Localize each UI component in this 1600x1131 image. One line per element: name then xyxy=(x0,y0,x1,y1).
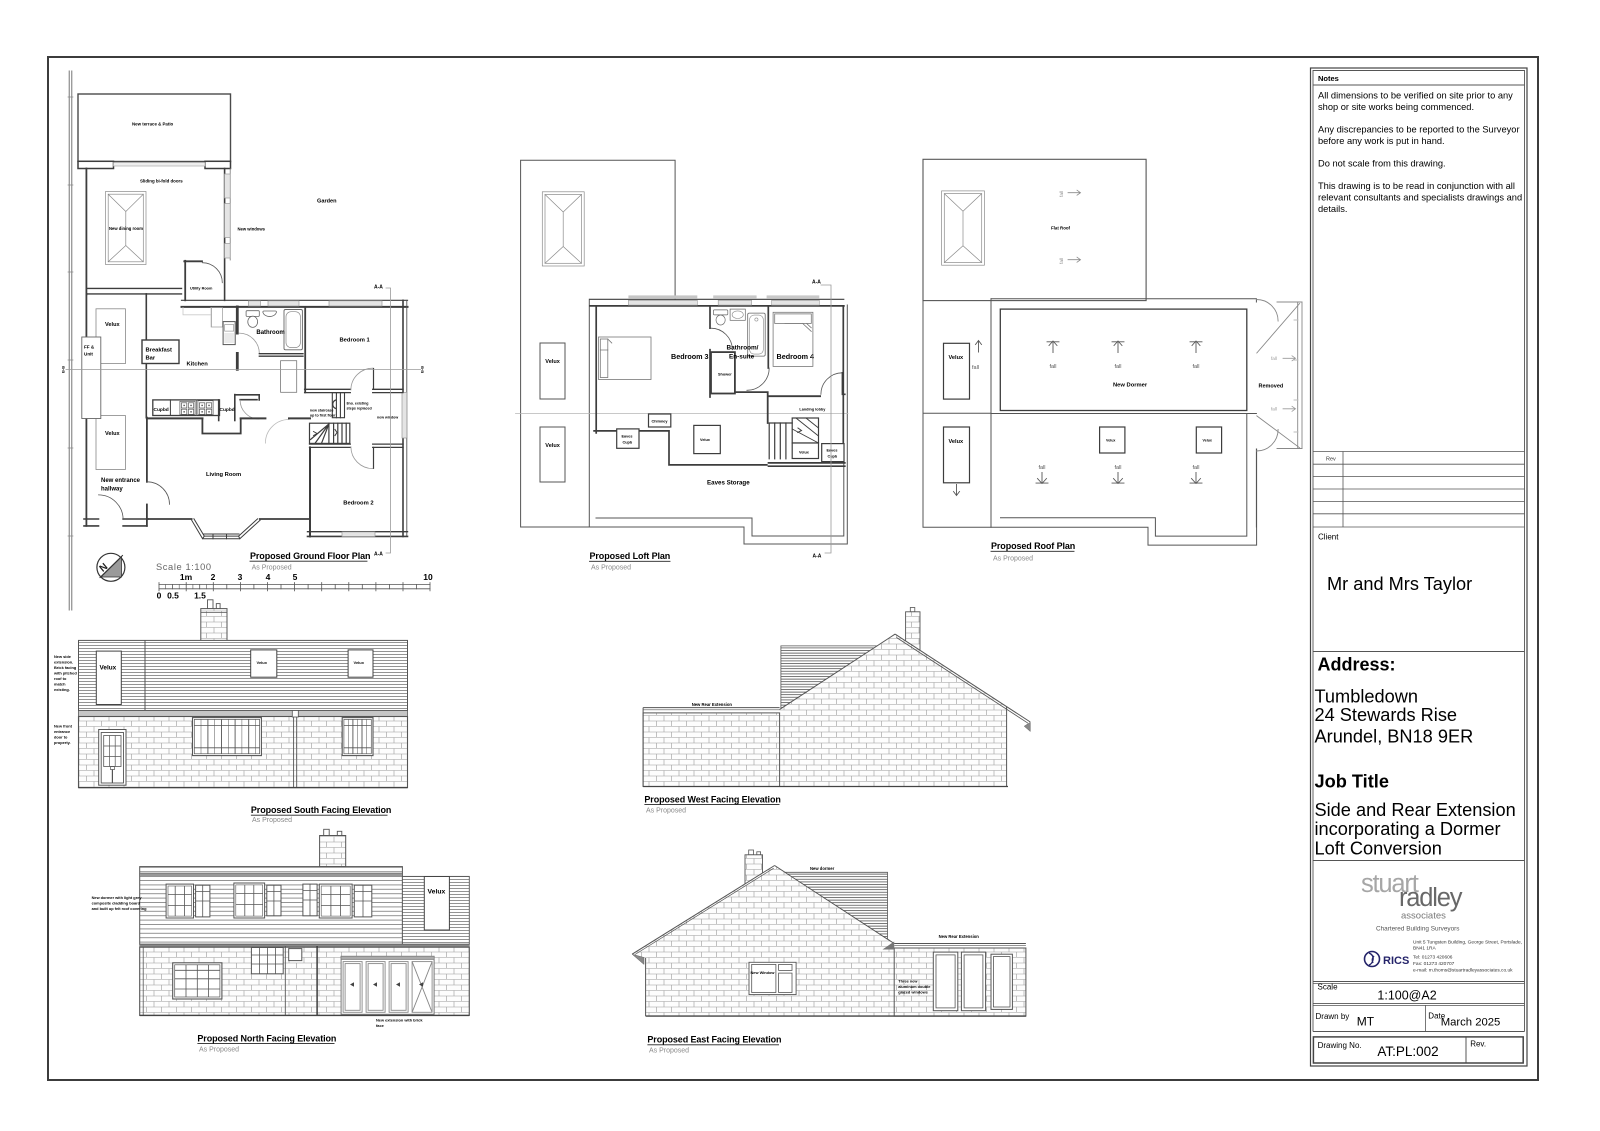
svg-text:shop or site works being comme: shop or site works being commenced. xyxy=(1318,102,1474,112)
svg-text:Arundel, BN18 9ER: Arundel, BN18 9ER xyxy=(1315,726,1474,746)
svg-text:Proposed Ground Floor Plan: Proposed Ground Floor Plan xyxy=(250,551,370,561)
svg-text:property.: property. xyxy=(54,740,71,745)
svg-text:RICS: RICS xyxy=(1383,955,1409,967)
svg-text:New Window: New Window xyxy=(751,970,776,975)
svg-text:Velux: Velux xyxy=(700,438,711,442)
svg-text:Bathroom/: Bathroom/ xyxy=(727,345,759,352)
svg-text:Velux: Velux xyxy=(1203,439,1212,443)
svg-text:Cupb: Cupb xyxy=(623,441,633,445)
svg-text:Cupbd: Cupbd xyxy=(220,407,235,413)
svg-text:Unit 5 Tungsten Building, Geor: Unit 5 Tungsten Building, George Street,… xyxy=(1413,940,1522,946)
svg-text:Bathroom: Bathroom xyxy=(256,330,284,336)
svg-text:Shower: Shower xyxy=(718,373,732,377)
svg-text:En-suite: En-suite xyxy=(729,354,755,361)
svg-text:Side and Rear Extension: Side and Rear Extension xyxy=(1315,800,1516,820)
svg-text:5: 5 xyxy=(293,572,298,582)
svg-text:New dormer: New dormer xyxy=(810,866,835,871)
svg-text:Velux: Velux xyxy=(105,431,121,437)
svg-text:fall: fall xyxy=(1192,364,1199,370)
svg-text:Brick facing: Brick facing xyxy=(54,665,77,670)
svg-text:Flat Roof: Flat Roof xyxy=(1051,226,1071,231)
svg-text:4: 4 xyxy=(266,572,271,582)
svg-text:New terrace & Patio: New terrace & Patio xyxy=(132,122,174,127)
svg-text:fall: fall xyxy=(1271,356,1277,361)
svg-text:incorporating a Dormer: incorporating a Dormer xyxy=(1315,819,1501,839)
svg-text:Mr and Mrs Taylor: Mr and Mrs Taylor xyxy=(1327,574,1472,594)
svg-text:Tel: 01273 420606: Tel: 01273 420606 xyxy=(1413,955,1453,961)
svg-text:relevant consultants and speci: relevant consultants and specialists dra… xyxy=(1318,193,1522,203)
svg-text:New Rear Extension: New Rear Extension xyxy=(692,702,733,707)
svg-text:roof to: roof to xyxy=(54,676,67,681)
svg-text:A-A: A-A xyxy=(812,280,821,286)
svg-text:24 Stewards Rise: 24 Stewards Rise xyxy=(1315,705,1458,725)
svg-text:Velux: Velux xyxy=(257,660,268,665)
svg-text:As Proposed: As Proposed xyxy=(252,817,292,824)
svg-text:New entrance: New entrance xyxy=(101,478,141,484)
svg-text:radley: radley xyxy=(1399,884,1463,912)
svg-text:Cupbd: Cupbd xyxy=(154,407,169,413)
svg-text:fall: fall xyxy=(1059,191,1064,197)
svg-text:Three new: Three new xyxy=(898,979,918,984)
svg-text:new staircase: new staircase xyxy=(310,409,334,413)
svg-text:As Proposed: As Proposed xyxy=(649,1048,689,1055)
svg-text:face: face xyxy=(376,1023,385,1028)
svg-text:New dining room: New dining room xyxy=(109,226,143,231)
svg-text:Proposed Roof Plan: Proposed Roof Plan xyxy=(991,541,1075,551)
svg-text:Chimney: Chimney xyxy=(652,420,669,424)
svg-text:Living Room: Living Room xyxy=(206,472,241,478)
svg-text:steps replaced: steps replaced xyxy=(347,407,372,411)
svg-text:fall: fall xyxy=(1049,364,1056,370)
svg-text:Scale: Scale xyxy=(1318,983,1339,992)
svg-text:fall: fall xyxy=(1059,258,1064,264)
svg-text:1.5: 1.5 xyxy=(194,591,206,601)
svg-text:As Proposed: As Proposed xyxy=(199,1047,239,1054)
svg-text:Chartered Building Surveyors: Chartered Building Surveyors xyxy=(1376,926,1459,933)
svg-text:new window: new window xyxy=(377,415,398,419)
svg-text:AT:PL:002: AT:PL:002 xyxy=(1377,1044,1438,1059)
svg-text:Eaves: Eaves xyxy=(827,449,838,453)
svg-text:New dormer with light grey: New dormer with light grey xyxy=(92,895,143,900)
svg-text:New windows: New windows xyxy=(238,227,266,232)
svg-text:As Proposed: As Proposed xyxy=(646,808,686,815)
svg-text:Bedroom 3: Bedroom 3 xyxy=(671,352,709,361)
svg-text:Scale 1:100: Scale 1:100 xyxy=(156,562,212,572)
svg-text:Garden: Garden xyxy=(317,199,337,205)
svg-text:3: 3 xyxy=(238,572,243,582)
svg-text:fall: fall xyxy=(1038,465,1045,471)
svg-text:hallway: hallway xyxy=(101,487,123,493)
svg-text:Cupb: Cupb xyxy=(828,455,838,459)
svg-text:Eaves: Eaves xyxy=(622,435,633,439)
svg-text:Any discrepancies to be report: Any discrepancies to be reported to the … xyxy=(1318,125,1520,135)
svg-text:e-mail: m.thoms@stuartradley: e-mail: m.thoms@stuartradleyassociates.c… xyxy=(1413,968,1513,974)
svg-text:Landing lobby: Landing lobby xyxy=(799,408,826,412)
svg-text:Bedroom 2: Bedroom 2 xyxy=(343,500,373,506)
svg-text:Bedroom 1: Bedroom 1 xyxy=(340,338,371,344)
svg-text:Sliding bi-fold doors: Sliding bi-fold doors xyxy=(140,179,183,184)
svg-text:A-A: A-A xyxy=(813,554,822,560)
svg-text:Drawing No.: Drawing No. xyxy=(1318,1041,1362,1050)
svg-text:Address:: Address: xyxy=(1318,654,1396,674)
svg-text:Removed: Removed xyxy=(1259,384,1284,390)
svg-text:Bar: Bar xyxy=(146,356,156,362)
svg-text:Utility Room: Utility Room xyxy=(190,287,213,291)
svg-text:Velux: Velux xyxy=(100,665,117,672)
svg-text:New side: New side xyxy=(54,654,72,659)
svg-text:associates: associates xyxy=(1401,911,1446,922)
svg-text:Velux: Velux xyxy=(949,355,965,361)
svg-text:Unit: Unit xyxy=(84,352,93,357)
svg-text:1:100@A2: 1:100@A2 xyxy=(1377,989,1436,1003)
svg-text:This drawing is to be read in: This drawing is to be read in conjunctio… xyxy=(1318,181,1515,191)
svg-text:As Proposed: As Proposed xyxy=(591,564,631,571)
svg-text:fall: fall xyxy=(1192,465,1199,471)
svg-text:Proposed West Facing Elevation: Proposed West Facing Elevation xyxy=(644,794,780,804)
svg-text:fall: fall xyxy=(1114,364,1121,370)
svg-text:New Dormer: New Dormer xyxy=(1113,383,1148,389)
svg-text:fall: fall xyxy=(1271,407,1277,412)
svg-text:Proposed East Facing Elevation: Proposed East Facing Elevation xyxy=(647,1035,781,1045)
svg-text:extension.: extension. xyxy=(54,660,73,665)
svg-text:Kitchen: Kitchen xyxy=(187,362,209,368)
svg-text:A-A: A-A xyxy=(374,552,383,558)
svg-text:Loft Conversion: Loft Conversion xyxy=(1315,839,1442,859)
svg-text:New Rear Extension: New Rear Extension xyxy=(939,934,980,939)
svg-text:up to first floor: up to first floor xyxy=(310,414,336,418)
svg-text:Velux: Velux xyxy=(545,359,561,365)
svg-text:before any work is put in hand: before any work is put in hand. xyxy=(1318,136,1445,146)
svg-text:BN41 1RA: BN41 1RA xyxy=(1413,946,1436,952)
svg-text:composite cladding board: composite cladding board xyxy=(92,901,141,906)
svg-text:Job Title: Job Title xyxy=(1315,772,1389,792)
svg-text:door to: door to xyxy=(54,735,68,740)
svg-text:Velux: Velux xyxy=(799,451,810,455)
svg-text:glazed windows: glazed windows xyxy=(898,990,928,995)
svg-text:Velux: Velux xyxy=(1106,439,1115,443)
svg-text:MT: MT xyxy=(1357,1015,1375,1029)
svg-text:Eaves Storage: Eaves Storage xyxy=(707,480,750,487)
svg-text:Do not scale from this drawing: Do not scale from this drawing. xyxy=(1318,159,1446,169)
svg-text:1m: 1m xyxy=(180,572,193,582)
svg-text:0.5: 0.5 xyxy=(167,591,179,601)
svg-text:Velux: Velux xyxy=(545,443,561,449)
svg-text:Proposed Loft Plan: Proposed Loft Plan xyxy=(590,551,671,561)
svg-text:All dimensions to be verified: All dimensions to be verified on site pr… xyxy=(1318,91,1513,101)
svg-text:aluminum double: aluminum double xyxy=(898,984,931,989)
svg-text:Drawn by: Drawn by xyxy=(1316,1012,1350,1021)
svg-text:B-B: B-B xyxy=(61,366,66,373)
svg-text:New extension with brick: New extension with brick xyxy=(376,1018,423,1023)
svg-text:8no. existing: 8no. existing xyxy=(347,402,369,406)
svg-text:Fax: 01273 420707: Fax: 01273 420707 xyxy=(1413,961,1455,967)
svg-text:Velux: Velux xyxy=(354,660,365,665)
svg-text:entrance: entrance xyxy=(54,729,71,734)
svg-text:Proposed South Facing Elevatio: Proposed South Facing Elevation xyxy=(251,805,391,815)
svg-text:and built up felt roof coverin: and built up felt roof covering xyxy=(92,906,148,911)
svg-text:2: 2 xyxy=(211,572,216,582)
svg-text:FF &: FF & xyxy=(84,345,95,350)
svg-text:Velux: Velux xyxy=(428,889,446,896)
svg-text:Client: Client xyxy=(1318,533,1339,542)
svg-text:Rev: Rev xyxy=(1326,457,1336,463)
svg-text:As Proposed: As Proposed xyxy=(252,565,292,572)
svg-text:with pitched: with pitched xyxy=(53,671,77,676)
svg-text:match: match xyxy=(54,682,66,687)
svg-text:Proposed North Facing Elevatio: Proposed North Facing Elevation xyxy=(197,1033,336,1043)
svg-text:A-A: A-A xyxy=(374,285,383,291)
svg-text:existing.: existing. xyxy=(54,687,70,692)
svg-text:10: 10 xyxy=(423,572,433,582)
svg-text:fall: fall xyxy=(1114,465,1121,471)
svg-text:New front: New front xyxy=(54,724,73,729)
svg-text:fall: fall xyxy=(972,365,979,371)
svg-text:Rev.: Rev. xyxy=(1470,1040,1486,1049)
svg-text:Notes: Notes xyxy=(1318,74,1339,83)
svg-text:Bedroom 4: Bedroom 4 xyxy=(777,352,815,361)
svg-text:As Proposed: As Proposed xyxy=(993,556,1033,563)
svg-text:B-B: B-B xyxy=(420,366,425,373)
svg-text:details.: details. xyxy=(1318,204,1347,214)
svg-text:0: 0 xyxy=(157,591,162,601)
svg-text:Breakfast: Breakfast xyxy=(146,348,172,354)
svg-text:Tumbledown: Tumbledown xyxy=(1315,686,1418,706)
svg-text:March 2025: March 2025 xyxy=(1441,1017,1501,1029)
svg-text:Velux: Velux xyxy=(949,439,965,445)
svg-text:Velux: Velux xyxy=(105,322,121,328)
